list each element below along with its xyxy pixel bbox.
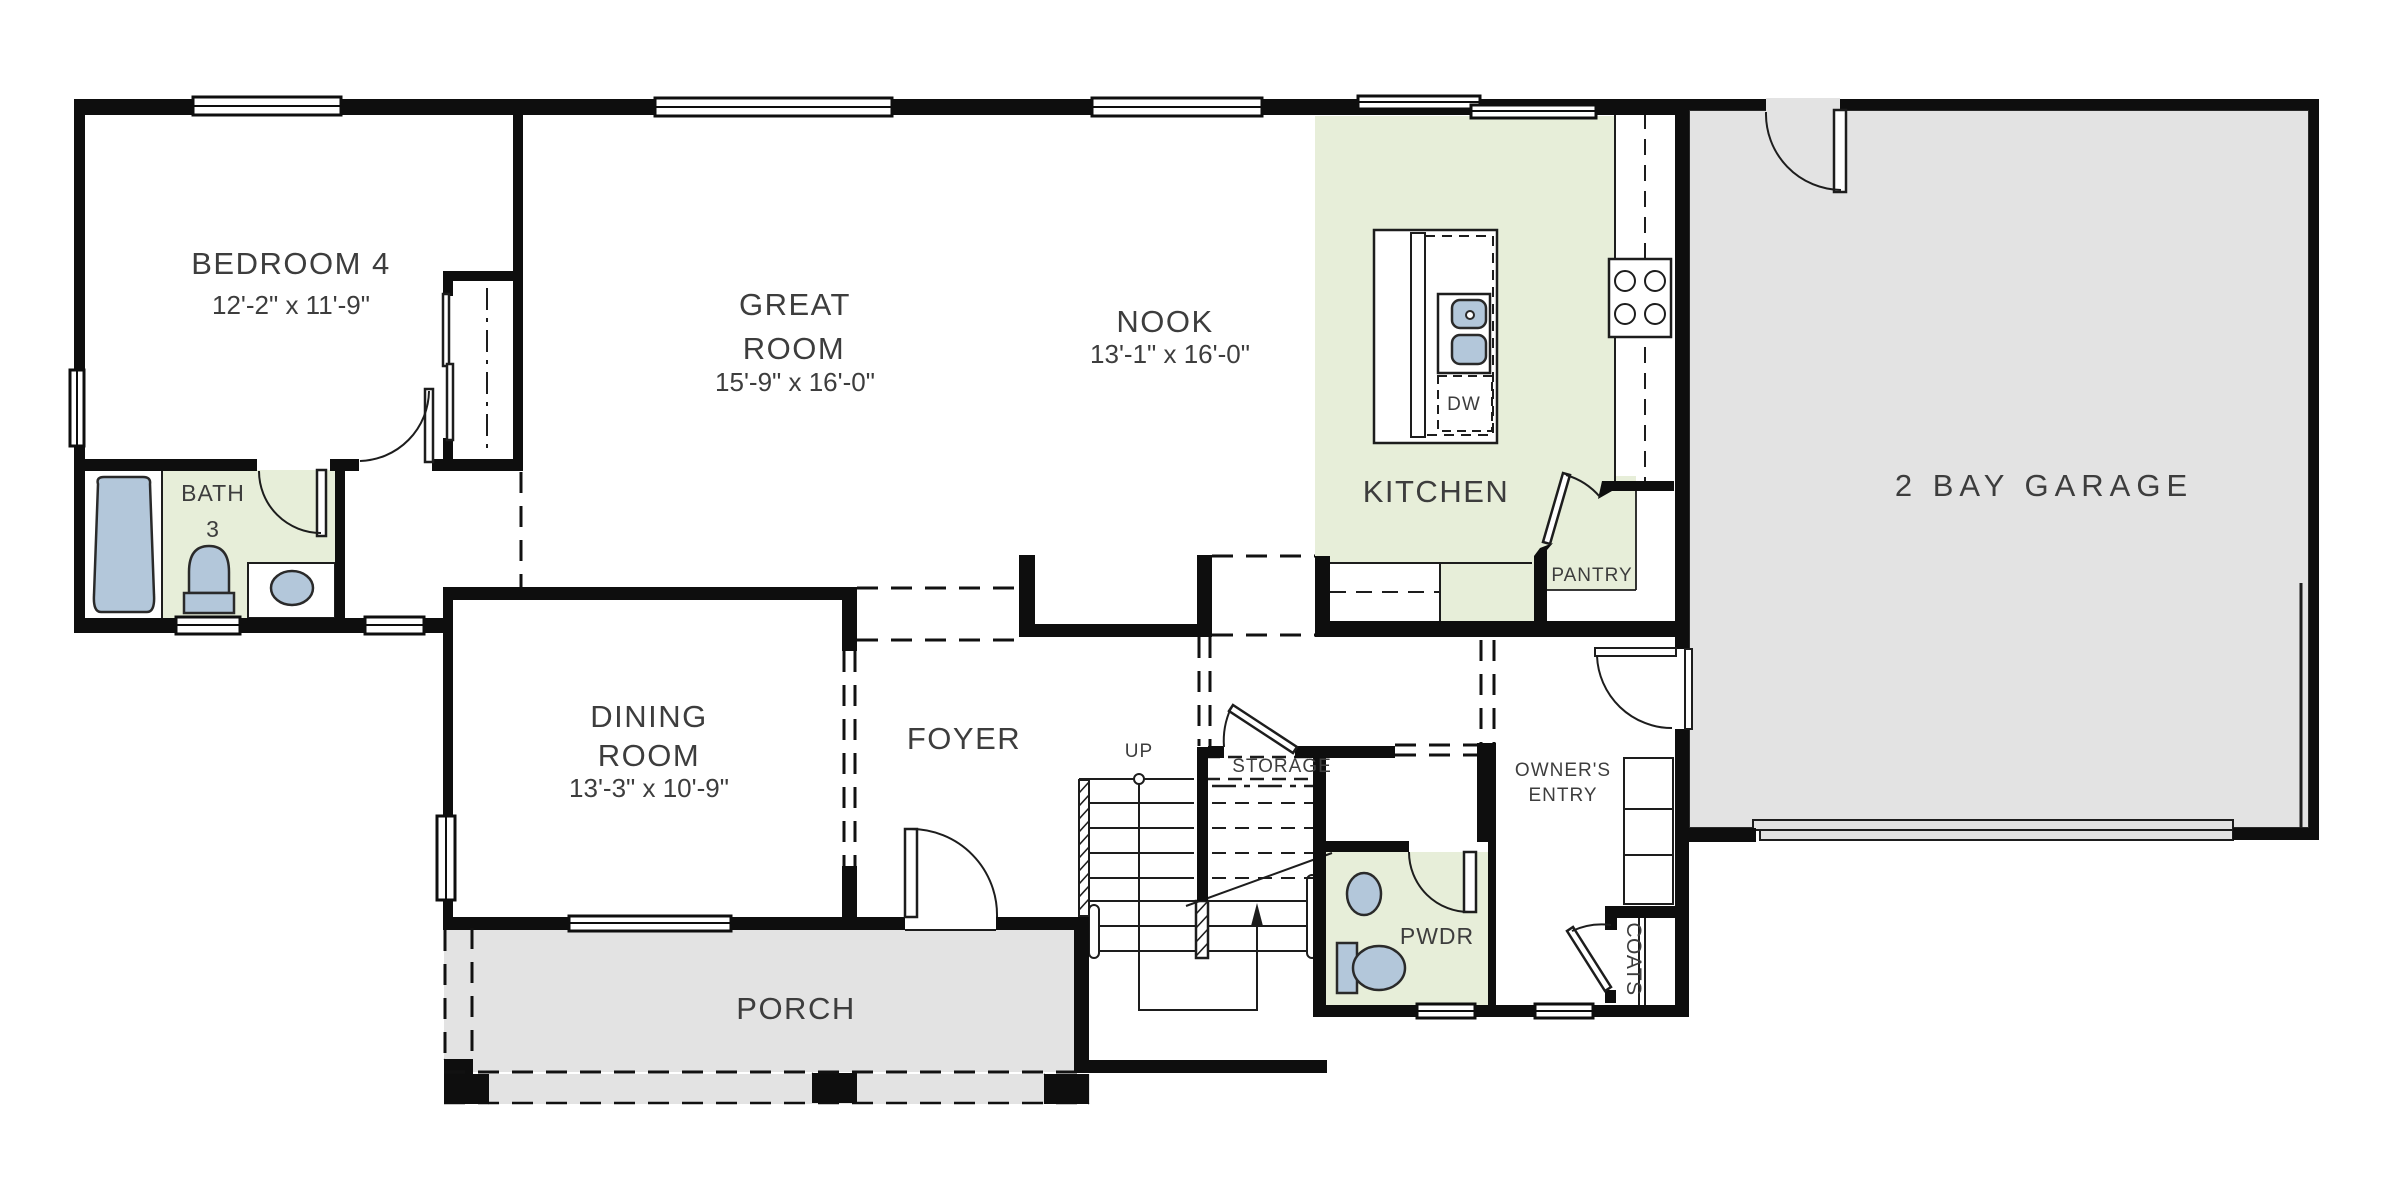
svg-text:12'-2" x 11'-9": 12'-2" x 11'-9" xyxy=(212,290,370,320)
svg-text:KITCHEN: KITCHEN xyxy=(1363,474,1510,509)
svg-text:BEDROOM 4: BEDROOM 4 xyxy=(191,246,391,281)
svg-text:15'-9" x 16'-0": 15'-9" x 16'-0" xyxy=(715,367,875,397)
svg-text:PWDR: PWDR xyxy=(1400,923,1474,949)
svg-text:GREAT: GREAT xyxy=(739,287,851,322)
svg-text:DINING: DINING xyxy=(590,699,708,734)
svg-text:ENTRY: ENTRY xyxy=(1528,785,1597,806)
svg-text:13'-3" x 10'-9": 13'-3" x 10'-9" xyxy=(569,773,729,803)
svg-text:ROOM: ROOM xyxy=(598,738,700,773)
svg-text:STORAGE: STORAGE xyxy=(1232,756,1332,777)
svg-text:PANTRY: PANTRY xyxy=(1551,565,1632,586)
svg-text:BATH: BATH xyxy=(181,480,245,506)
svg-text:3: 3 xyxy=(206,516,220,542)
svg-text:ROOM: ROOM xyxy=(743,331,845,366)
svg-text:NOOK: NOOK xyxy=(1116,304,1213,339)
svg-text:FOYER: FOYER xyxy=(907,721,1021,756)
svg-text:UP: UP xyxy=(1125,741,1153,762)
svg-text:COATS: COATS xyxy=(1622,922,1645,995)
svg-text:13'-1" x 16'-0": 13'-1" x 16'-0" xyxy=(1090,339,1250,369)
svg-text:DW: DW xyxy=(1447,394,1481,415)
svg-text:PORCH: PORCH xyxy=(736,991,855,1026)
svg-text:OWNER'S: OWNER'S xyxy=(1515,760,1611,781)
svg-text:2 BAY GARAGE: 2 BAY GARAGE xyxy=(1895,468,2193,503)
